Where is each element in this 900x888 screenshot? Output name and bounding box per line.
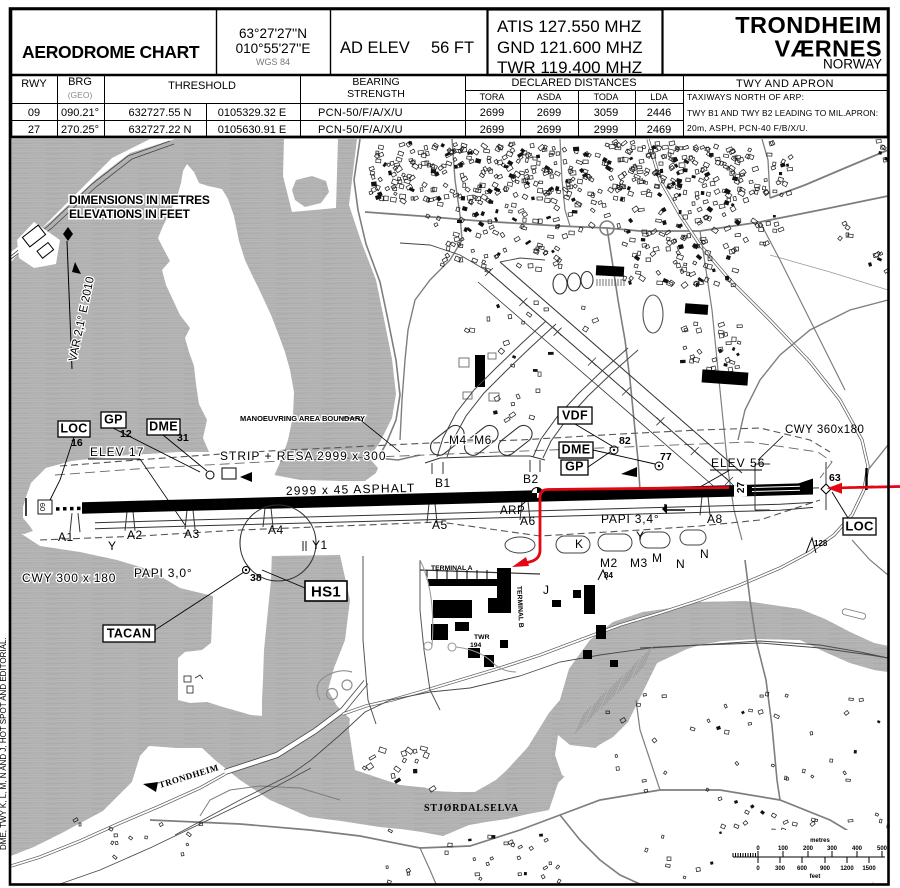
svg-text:DME: DME	[562, 443, 591, 457]
svg-text:300: 300	[827, 846, 838, 852]
svg-text:27: 27	[736, 482, 747, 494]
svg-text:31: 31	[177, 432, 189, 444]
svg-text:TACAN: TACAN	[107, 627, 151, 641]
svg-text:2699: 2699	[480, 124, 504, 136]
svg-text:LOC: LOC	[60, 422, 87, 436]
svg-text:128: 128	[814, 539, 828, 548]
svg-text:AERODROME CHART: AERODROME CHART	[22, 42, 200, 62]
svg-text:010°55'27''E: 010°55'27''E	[236, 41, 311, 56]
svg-text:(GEO): (GEO)	[68, 90, 93, 100]
svg-text:PCN-50/F/A/X/U: PCN-50/F/A/X/U	[318, 107, 403, 119]
svg-text:ELEV 17: ELEV 17	[90, 445, 144, 459]
svg-text:Y1: Y1	[312, 538, 328, 552]
svg-text:ARP: ARP	[500, 505, 525, 517]
svg-text:LDA: LDA	[650, 92, 668, 102]
svg-text:BEARING: BEARING	[352, 76, 399, 88]
svg-text:38: 38	[250, 572, 262, 584]
svg-text:2699: 2699	[480, 107, 504, 119]
svg-text:632727.55 N: 632727.55 N	[129, 107, 192, 119]
svg-text:A5: A5	[432, 518, 448, 532]
svg-text:0105630.91 E: 0105630.91 E	[218, 124, 287, 136]
svg-text:feet: feet	[810, 874, 821, 880]
svg-text:TWR: TWR	[474, 634, 490, 641]
svg-text:300: 300	[775, 866, 786, 872]
svg-text:A3: A3	[184, 527, 200, 541]
svg-text:56 FT: 56 FT	[431, 39, 474, 57]
svg-text:09: 09	[28, 107, 40, 119]
svg-text:63°27'27''N: 63°27'27''N	[239, 26, 307, 41]
svg-text:77: 77	[660, 451, 672, 463]
svg-text:TODA: TODA	[594, 92, 619, 102]
svg-text:2446: 2446	[647, 107, 671, 119]
svg-text:NORWAY: NORWAY	[823, 57, 882, 72]
svg-text:ATIS 127.550 MHZ: ATIS 127.550 MHZ	[497, 17, 641, 36]
svg-text:N: N	[700, 547, 709, 561]
svg-text:16: 16	[71, 437, 83, 449]
svg-text:TERMINAL B: TERMINAL B	[515, 586, 524, 628]
svg-text:THRESHOLD: THRESHOLD	[168, 80, 236, 92]
svg-text:A1: A1	[58, 530, 74, 544]
svg-text:900: 900	[820, 866, 831, 872]
svg-text:PAPI 3,4°: PAPI 3,4°	[601, 512, 659, 526]
svg-text:GP: GP	[104, 413, 123, 427]
svg-text:A8: A8	[707, 512, 723, 526]
svg-text:TWY AND APRON: TWY AND APRON	[736, 78, 834, 90]
svg-text:2699: 2699	[537, 124, 561, 136]
svg-text:DECLARED DISTANCES: DECLARED DISTANCES	[511, 77, 636, 89]
svg-text:B2: B2	[523, 472, 539, 486]
svg-text:M4−M6: M4−M6	[449, 433, 492, 447]
svg-text:K: K	[575, 537, 584, 551]
svg-text:DME, TWY K, L, M, N AND J, HOT: DME, TWY K, L, M, N AND J, HOT SPOT AND …	[0, 637, 8, 850]
svg-text:STJØRDALSELVA: STJØRDALSELVA	[424, 803, 519, 814]
svg-text:A4: A4	[268, 523, 284, 537]
svg-text:DME: DME	[149, 420, 178, 434]
svg-text:090.21°: 090.21°	[61, 107, 99, 119]
svg-text:1200: 1200	[840, 866, 854, 872]
svg-text:632727.22 N: 632727.22 N	[129, 124, 192, 136]
svg-text:100: 100	[778, 846, 789, 852]
svg-text:3059: 3059	[594, 107, 618, 119]
svg-text:82: 82	[619, 435, 631, 447]
svg-text:ELEV 56: ELEV 56	[711, 456, 765, 470]
svg-text:0105329.32 E: 0105329.32 E	[218, 107, 287, 119]
svg-text:M3: M3	[630, 556, 648, 570]
svg-text:400: 400	[852, 846, 863, 852]
svg-text:270.25°: 270.25°	[61, 124, 99, 136]
svg-text:2699: 2699	[537, 107, 561, 119]
svg-text:Y: Y	[108, 539, 117, 553]
svg-text:M2: M2	[600, 556, 618, 570]
svg-text:TORA: TORA	[480, 92, 505, 102]
svg-text:WGS 84: WGS 84	[256, 57, 290, 67]
svg-text:HS1: HS1	[311, 584, 341, 601]
svg-text:Y: Y	[636, 529, 645, 543]
svg-text:194: 194	[470, 642, 482, 649]
svg-text:2469: 2469	[647, 124, 671, 136]
svg-text:BRG: BRG	[68, 76, 92, 88]
svg-text:1500: 1500	[862, 866, 876, 872]
svg-text:27: 27	[28, 124, 40, 136]
svg-text:AD ELEV: AD ELEV	[340, 39, 410, 57]
svg-text:GP: GP	[565, 460, 584, 474]
svg-text:A2: A2	[127, 528, 143, 542]
svg-text:TWY B1 AND TWY B2 LEADING TO M: TWY B1 AND TWY B2 LEADING TO MIL.APRON:	[687, 108, 878, 118]
svg-text:500: 500	[877, 846, 888, 852]
svg-text:LOC: LOC	[845, 519, 874, 534]
svg-text:2999: 2999	[594, 124, 618, 136]
svg-text:M: M	[652, 551, 663, 565]
svg-text:CWY 300 x 180: CWY 300 x 180	[22, 571, 116, 585]
svg-text:PCN-50/F/A/X/U: PCN-50/F/A/X/U	[318, 124, 403, 136]
svg-text:ASDA: ASDA	[537, 92, 562, 102]
svg-text:09: 09	[38, 503, 47, 511]
svg-text:TAXIWAYS NORTH OF ARP:: TAXIWAYS NORTH OF ARP:	[687, 92, 804, 102]
svg-text:63: 63	[829, 472, 841, 484]
svg-text:STRIP + RESA 2999 x 300: STRIP + RESA 2999 x 300	[220, 449, 387, 463]
svg-text:N: N	[676, 557, 685, 571]
svg-text:20m, ASPH, PCN-40 F/B/X/U.: 20m, ASPH, PCN-40 F/B/X/U.	[687, 123, 808, 133]
svg-text:B1: B1	[435, 476, 451, 490]
svg-text:MANOEUVRING AREA BOUNDARY: MANOEUVRING AREA BOUNDARY	[240, 414, 365, 423]
svg-text:12: 12	[120, 428, 132, 440]
svg-text:GND 121.600 MHZ: GND 121.600 MHZ	[497, 38, 643, 57]
svg-text:metres: metres	[810, 838, 830, 844]
svg-text:200: 200	[803, 846, 814, 852]
svg-text:J: J	[543, 583, 550, 597]
svg-text:600: 600	[797, 866, 808, 872]
svg-text:84: 84	[604, 571, 613, 580]
svg-text:TWR 119.400 MHZ: TWR 119.400 MHZ	[497, 58, 642, 77]
svg-text:STRENGTH: STRENGTH	[347, 88, 405, 100]
svg-text:RWY: RWY	[21, 78, 47, 90]
svg-text:PAPI 3,0°: PAPI 3,0°	[134, 566, 192, 580]
svg-text:TERMINAL A: TERMINAL A	[431, 565, 473, 572]
svg-text:VDF: VDF	[562, 409, 588, 423]
svg-text:DIMENSIONS IN METRES: DIMENSIONS IN METRES	[69, 193, 210, 207]
svg-text:CWY 360x180: CWY 360x180	[785, 424, 864, 436]
svg-text:ELEVATIONS IN FEET: ELEVATIONS IN FEET	[69, 207, 191, 221]
svg-text:TRONDHEIM: TRONDHEIM	[735, 12, 882, 38]
